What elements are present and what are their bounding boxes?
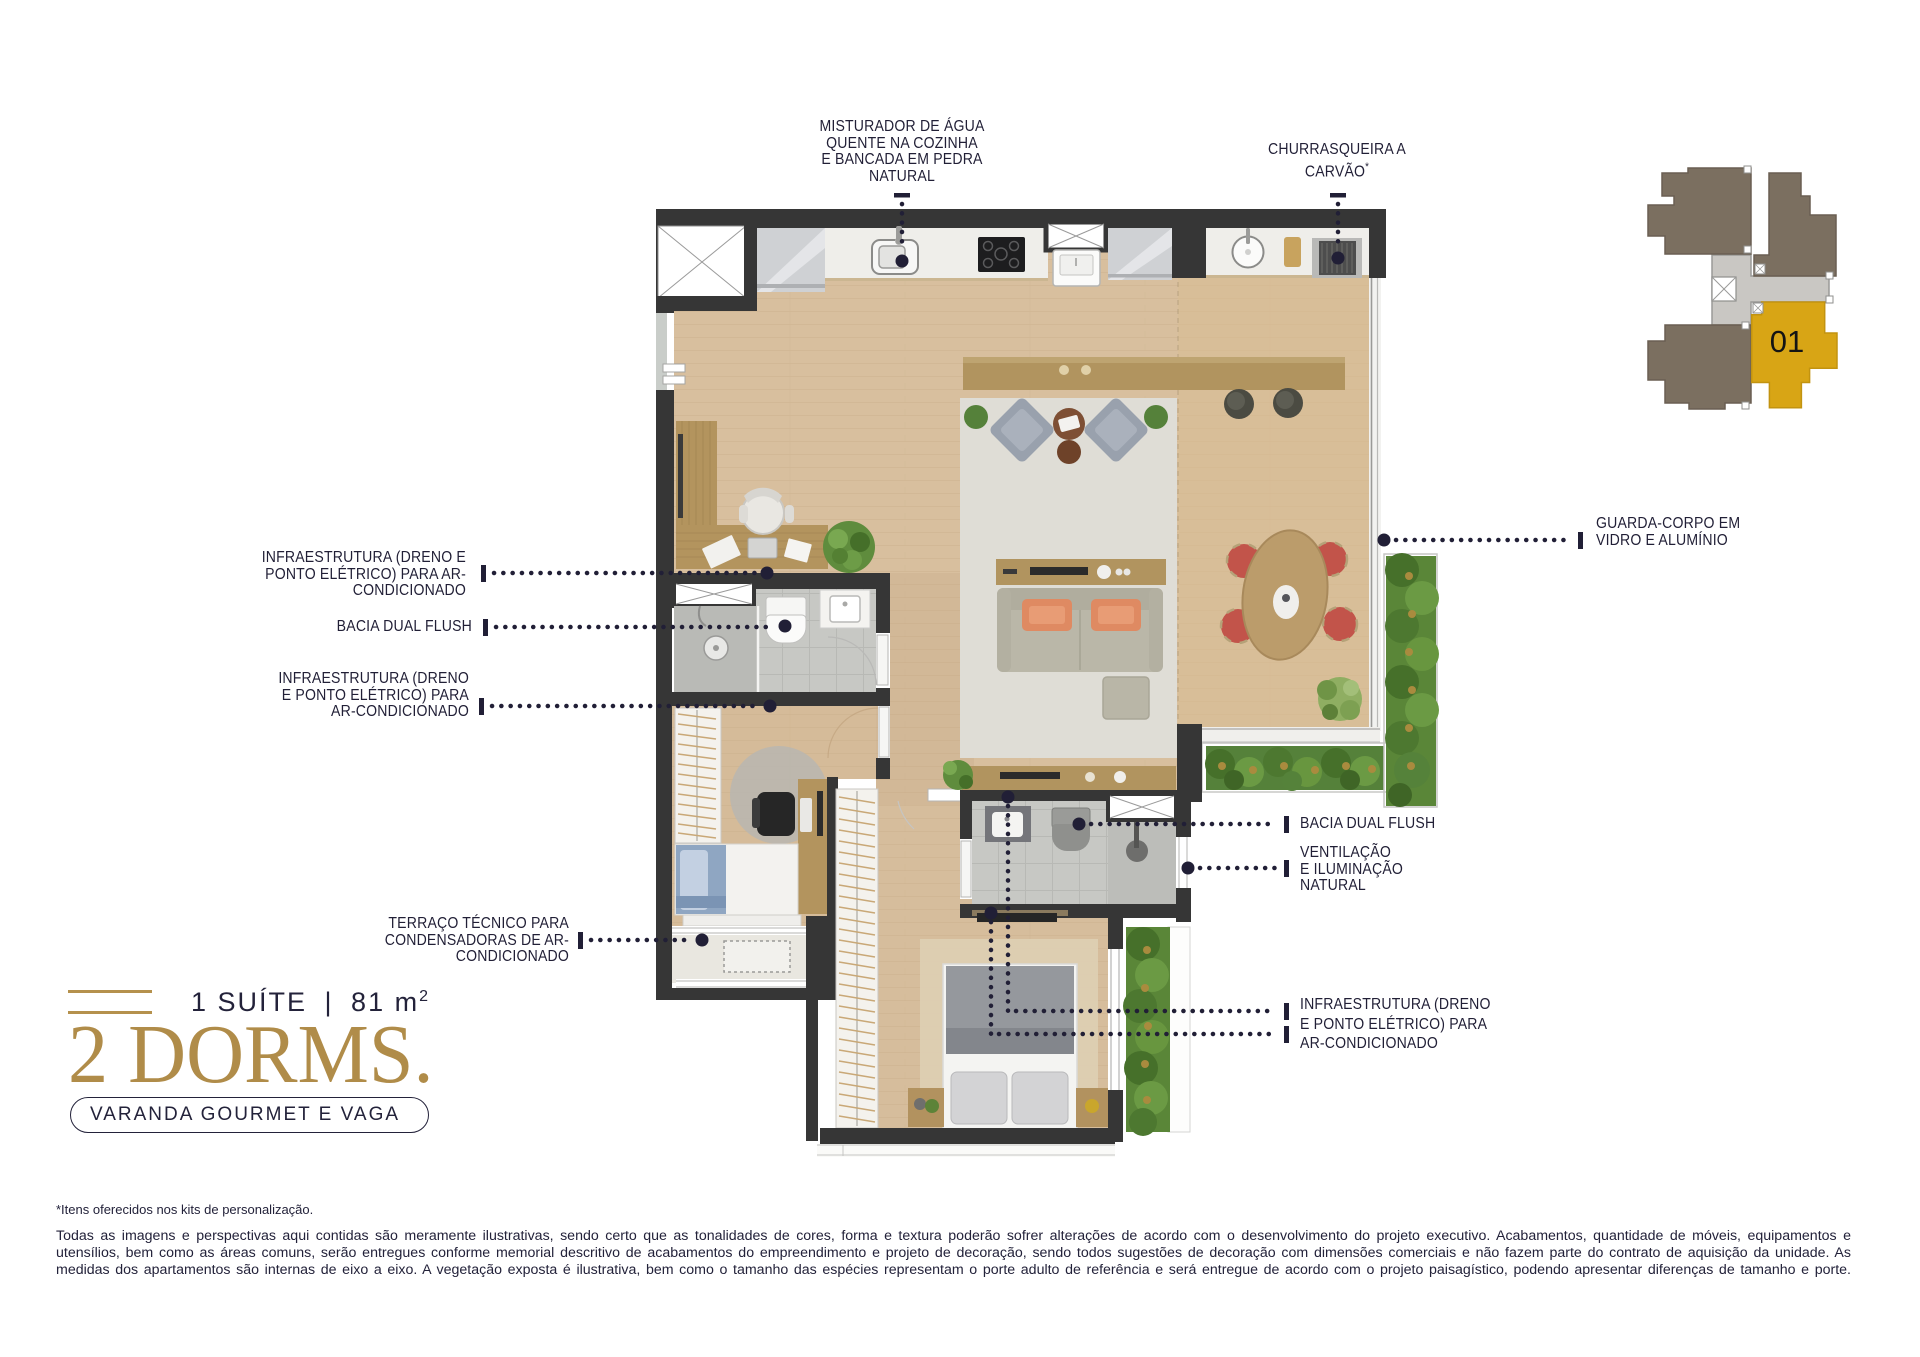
svg-text:01: 01 [1770, 324, 1804, 359]
